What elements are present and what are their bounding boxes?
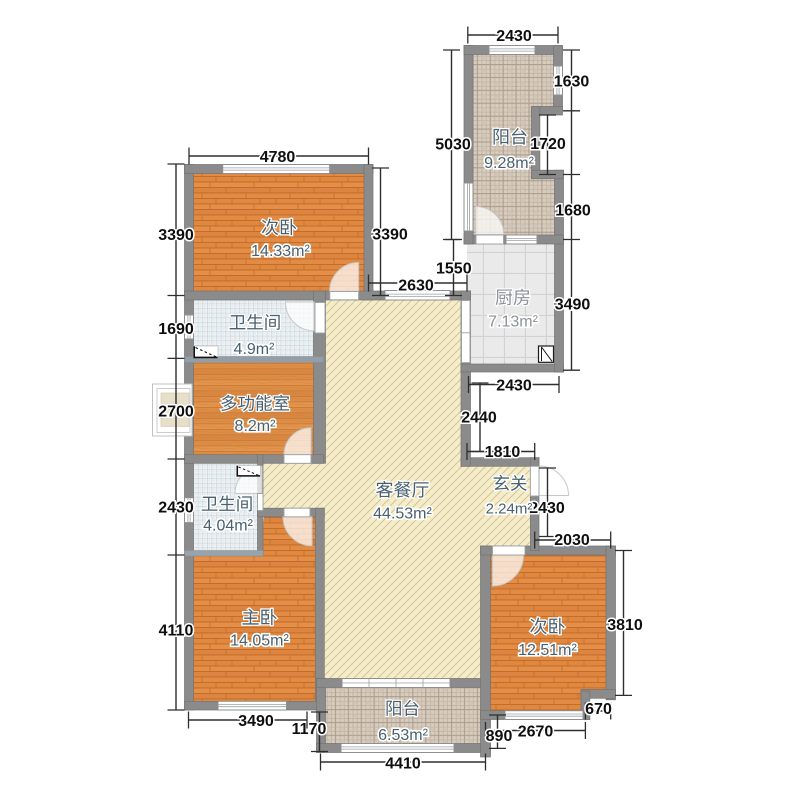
svg-text:2030: 2030 (554, 532, 590, 549)
svg-text:8.2m²: 8.2m² (235, 418, 277, 435)
svg-text:1680: 1680 (555, 203, 591, 220)
svg-text:670: 670 (585, 701, 612, 718)
svg-text:3390: 3390 (372, 227, 408, 244)
svg-text:890: 890 (486, 728, 513, 745)
svg-text:2430: 2430 (158, 500, 194, 517)
svg-text:1690: 1690 (158, 321, 194, 338)
svg-text:4.9m²: 4.9m² (234, 341, 276, 358)
svg-text:2630: 2630 (398, 278, 434, 295)
svg-text:4.04m²: 4.04m² (203, 517, 253, 534)
svg-text:2430: 2430 (496, 28, 532, 45)
svg-text:2.24m²: 2.24m² (486, 500, 533, 517)
svg-text:2430: 2430 (496, 378, 532, 395)
svg-text:3490: 3490 (238, 713, 274, 730)
svg-text:1720: 1720 (530, 136, 566, 153)
svg-text:3490: 3490 (555, 297, 591, 314)
svg-text:1550: 1550 (436, 261, 472, 278)
svg-text:3810: 3810 (607, 617, 643, 634)
svg-text:1810: 1810 (485, 444, 521, 461)
svg-text:4110: 4110 (159, 623, 194, 640)
svg-text:44.53m²: 44.53m² (373, 505, 432, 522)
svg-text:14.33m²: 14.33m² (251, 243, 310, 260)
svg-text:2700: 2700 (158, 404, 194, 421)
svg-text:2440: 2440 (461, 410, 497, 427)
svg-text:5030: 5030 (435, 137, 471, 154)
svg-text:4780: 4780 (260, 149, 296, 166)
svg-text:4410: 4410 (385, 756, 421, 773)
svg-text:3390: 3390 (158, 227, 194, 244)
svg-text:9.28m²: 9.28m² (484, 155, 534, 172)
svg-text:2670: 2670 (518, 724, 554, 741)
svg-text:1170: 1170 (292, 721, 327, 738)
svg-text:7.13m²: 7.13m² (488, 313, 538, 330)
svg-text:6.53m²: 6.53m² (378, 727, 428, 744)
svg-text:2430: 2430 (529, 500, 565, 517)
svg-text:1630: 1630 (554, 74, 590, 91)
svg-text:12.51m²: 12.51m² (518, 642, 577, 659)
svg-text:14.05m²: 14.05m² (230, 632, 289, 649)
